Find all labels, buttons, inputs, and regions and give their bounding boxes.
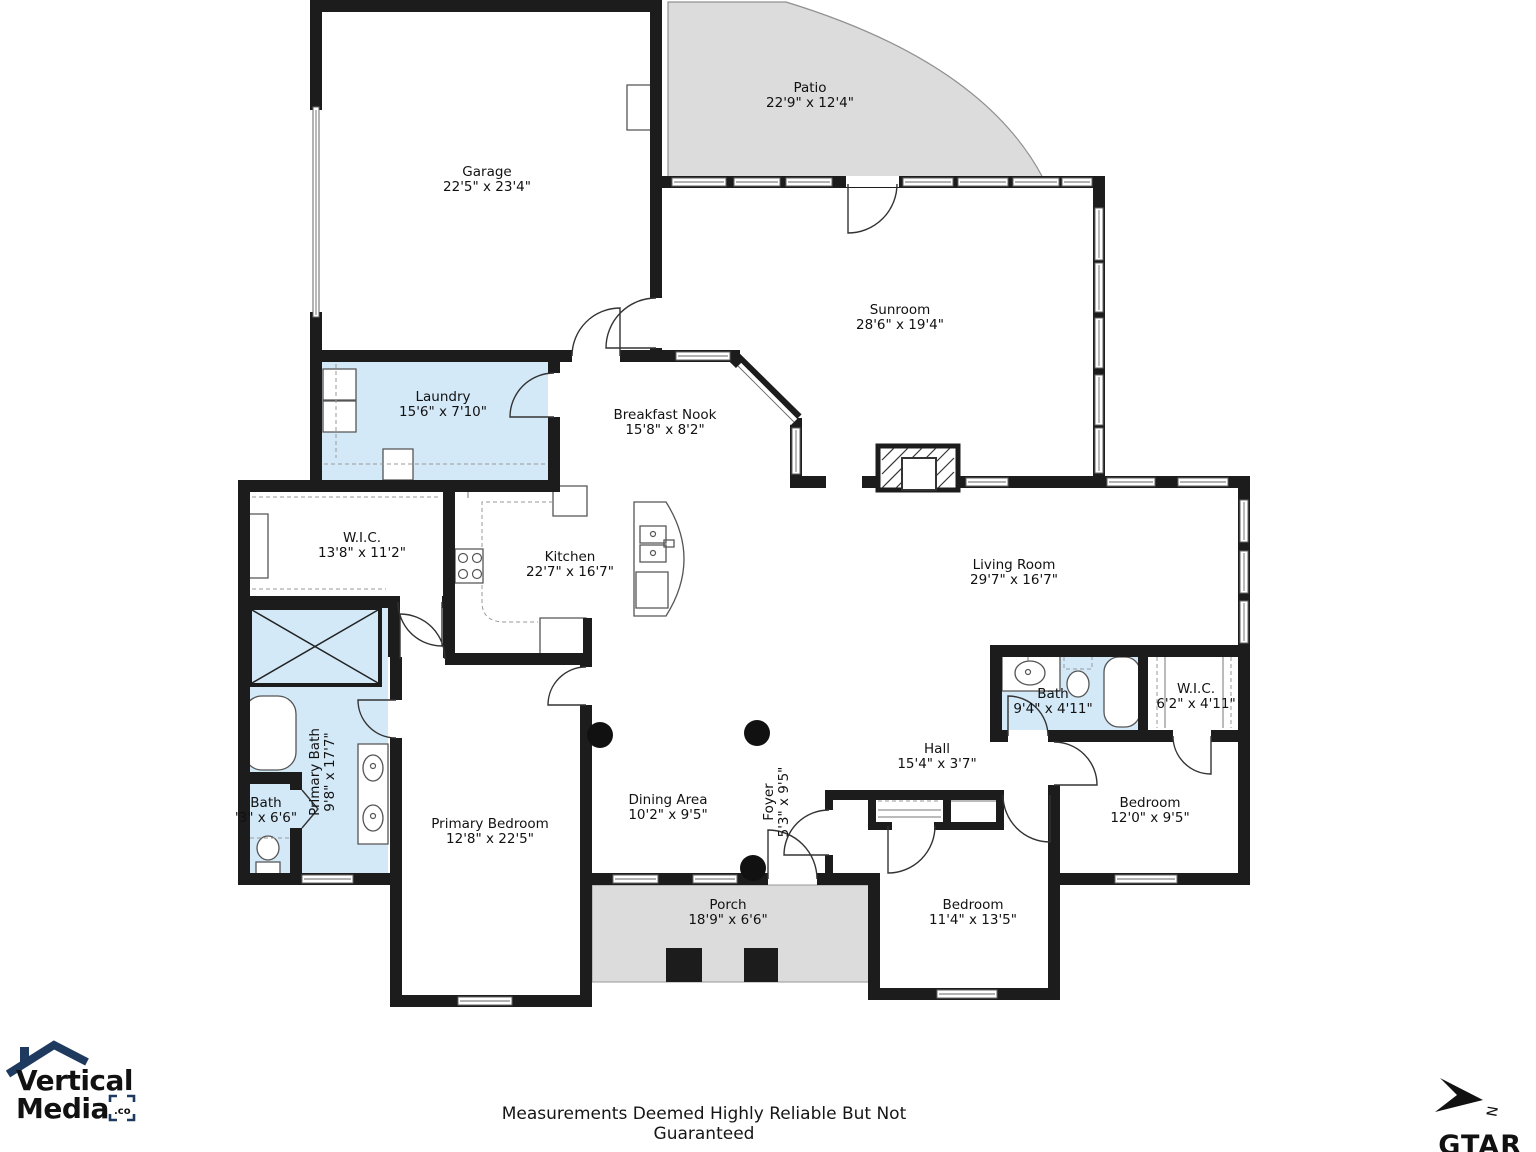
toilet-small-bath (257, 836, 279, 860)
room-label-bath-small: Bath (250, 795, 281, 811)
patio-area (668, 2, 1043, 178)
room-label-bedroom-bottom: Bedroom (942, 897, 1003, 913)
room-label-dining-area: Dining Area (629, 792, 708, 808)
room-label-wic-hall: W.I.C. (1177, 681, 1215, 697)
room-dims-breakfast-nook: 15'8" x 8'2" (625, 422, 704, 438)
room-label-sunroom: Sunroom (870, 302, 931, 318)
compass: N (1400, 1055, 1530, 1135)
vertical-media-logo: Vertical Media .co (6, 1036, 176, 1131)
door-threshold (846, 176, 899, 187)
bathtub-hall (1104, 657, 1140, 727)
logo-suffix: .co (114, 1106, 131, 1117)
toilet-hall-bath (1067, 671, 1089, 697)
room-label-primary-bath: Primary Bath (307, 728, 323, 816)
room-dims-bath-small: '3" x 6'6" (235, 810, 297, 826)
room-dims-sunroom: 28'6" x 19'4" (856, 317, 944, 333)
room-dims-laundry: 15'6" x 7'10" (399, 404, 487, 420)
doors (302, 184, 1211, 879)
room-dims-bedroom-bottom: 11'4" x 13'5" (929, 912, 1017, 928)
room-dims-wic-primary: 13'8" x 11'2" (318, 545, 406, 561)
room-dims-hall: 15'4" x 3'7" (897, 756, 976, 772)
room-label-porch: Porch (709, 897, 746, 913)
column (587, 722, 613, 748)
room-dims-garage: 22'5" x 23'4" (443, 179, 531, 195)
room-dims-patio: 22'9" x 12'4" (766, 95, 854, 111)
room-dims-kitchen: 22'7" x 16'7" (526, 564, 614, 580)
room-dims-bath-hall: 9'4" x 4'11" (1013, 701, 1092, 717)
fireplace (878, 446, 958, 490)
room-dims-dining-area: 10'2" x 9'5" (628, 807, 707, 823)
room-label-bedroom-right: Bedroom (1119, 795, 1180, 811)
floorplan-drawing: Garage 22'5" x 23'4" Patio 22'9" x 12'4"… (0, 0, 1536, 1152)
room-label-laundry: Laundry (415, 389, 470, 405)
room-label-foyer-group: Foyer 5'3" x 9'5" (761, 767, 792, 838)
logo-frame-icon: .co (110, 1096, 134, 1120)
door-swings (302, 184, 1211, 879)
room-dims-primary-bath: 9'8" x 17'7" (322, 732, 338, 811)
disclaimer-text: Measurements Deemed Highly Reliable But … (454, 1104, 954, 1144)
bay-window-midline (738, 366, 794, 422)
column (744, 720, 770, 746)
logo-line2: Media (16, 1092, 109, 1125)
room-label-living-room: Living Room (973, 557, 1056, 573)
room-label-primary-bath-group: Primary Bath 9'8" x 17'7" (307, 728, 338, 816)
room-label-bath-hall: Bath (1037, 686, 1068, 702)
column (740, 855, 766, 881)
gtar-logo: GTAR (1438, 1130, 1522, 1152)
room-dims-foyer: 5'3" x 9'5" (776, 767, 792, 838)
floorplan-page: Garage 22'5" x 23'4" Patio 22'9" x 12'4"… (0, 0, 1536, 1152)
room-dims-porch: 18'9" x 6'6" (688, 912, 767, 928)
room-label-hall: Hall (924, 741, 950, 757)
north-arrow-icon (1435, 1078, 1483, 1112)
room-dims-primary-bedroom: 12'8" x 22'5" (446, 831, 534, 847)
bathtub-primary (244, 696, 296, 770)
room-dims-wic-hall: 6'2" x 4'11" (1156, 696, 1235, 712)
room-dims-bedroom-right: 12'0" x 9'5" (1110, 810, 1189, 826)
room-label-patio: Patio (793, 80, 826, 96)
room-label-breakfast-nook: Breakfast Nook (614, 407, 717, 423)
room-label-garage: Garage (462, 164, 511, 180)
compass-north-label: N (1482, 1105, 1500, 1118)
room-label-kitchen: Kitchen (545, 549, 596, 565)
room-label-foyer: Foyer (761, 783, 777, 821)
room-dims-living-room: 29'7" x 16'7" (970, 572, 1058, 588)
room-label-wic-primary: W.I.C. (343, 530, 381, 546)
room-label-primary-bedroom: Primary Bedroom (431, 816, 549, 832)
